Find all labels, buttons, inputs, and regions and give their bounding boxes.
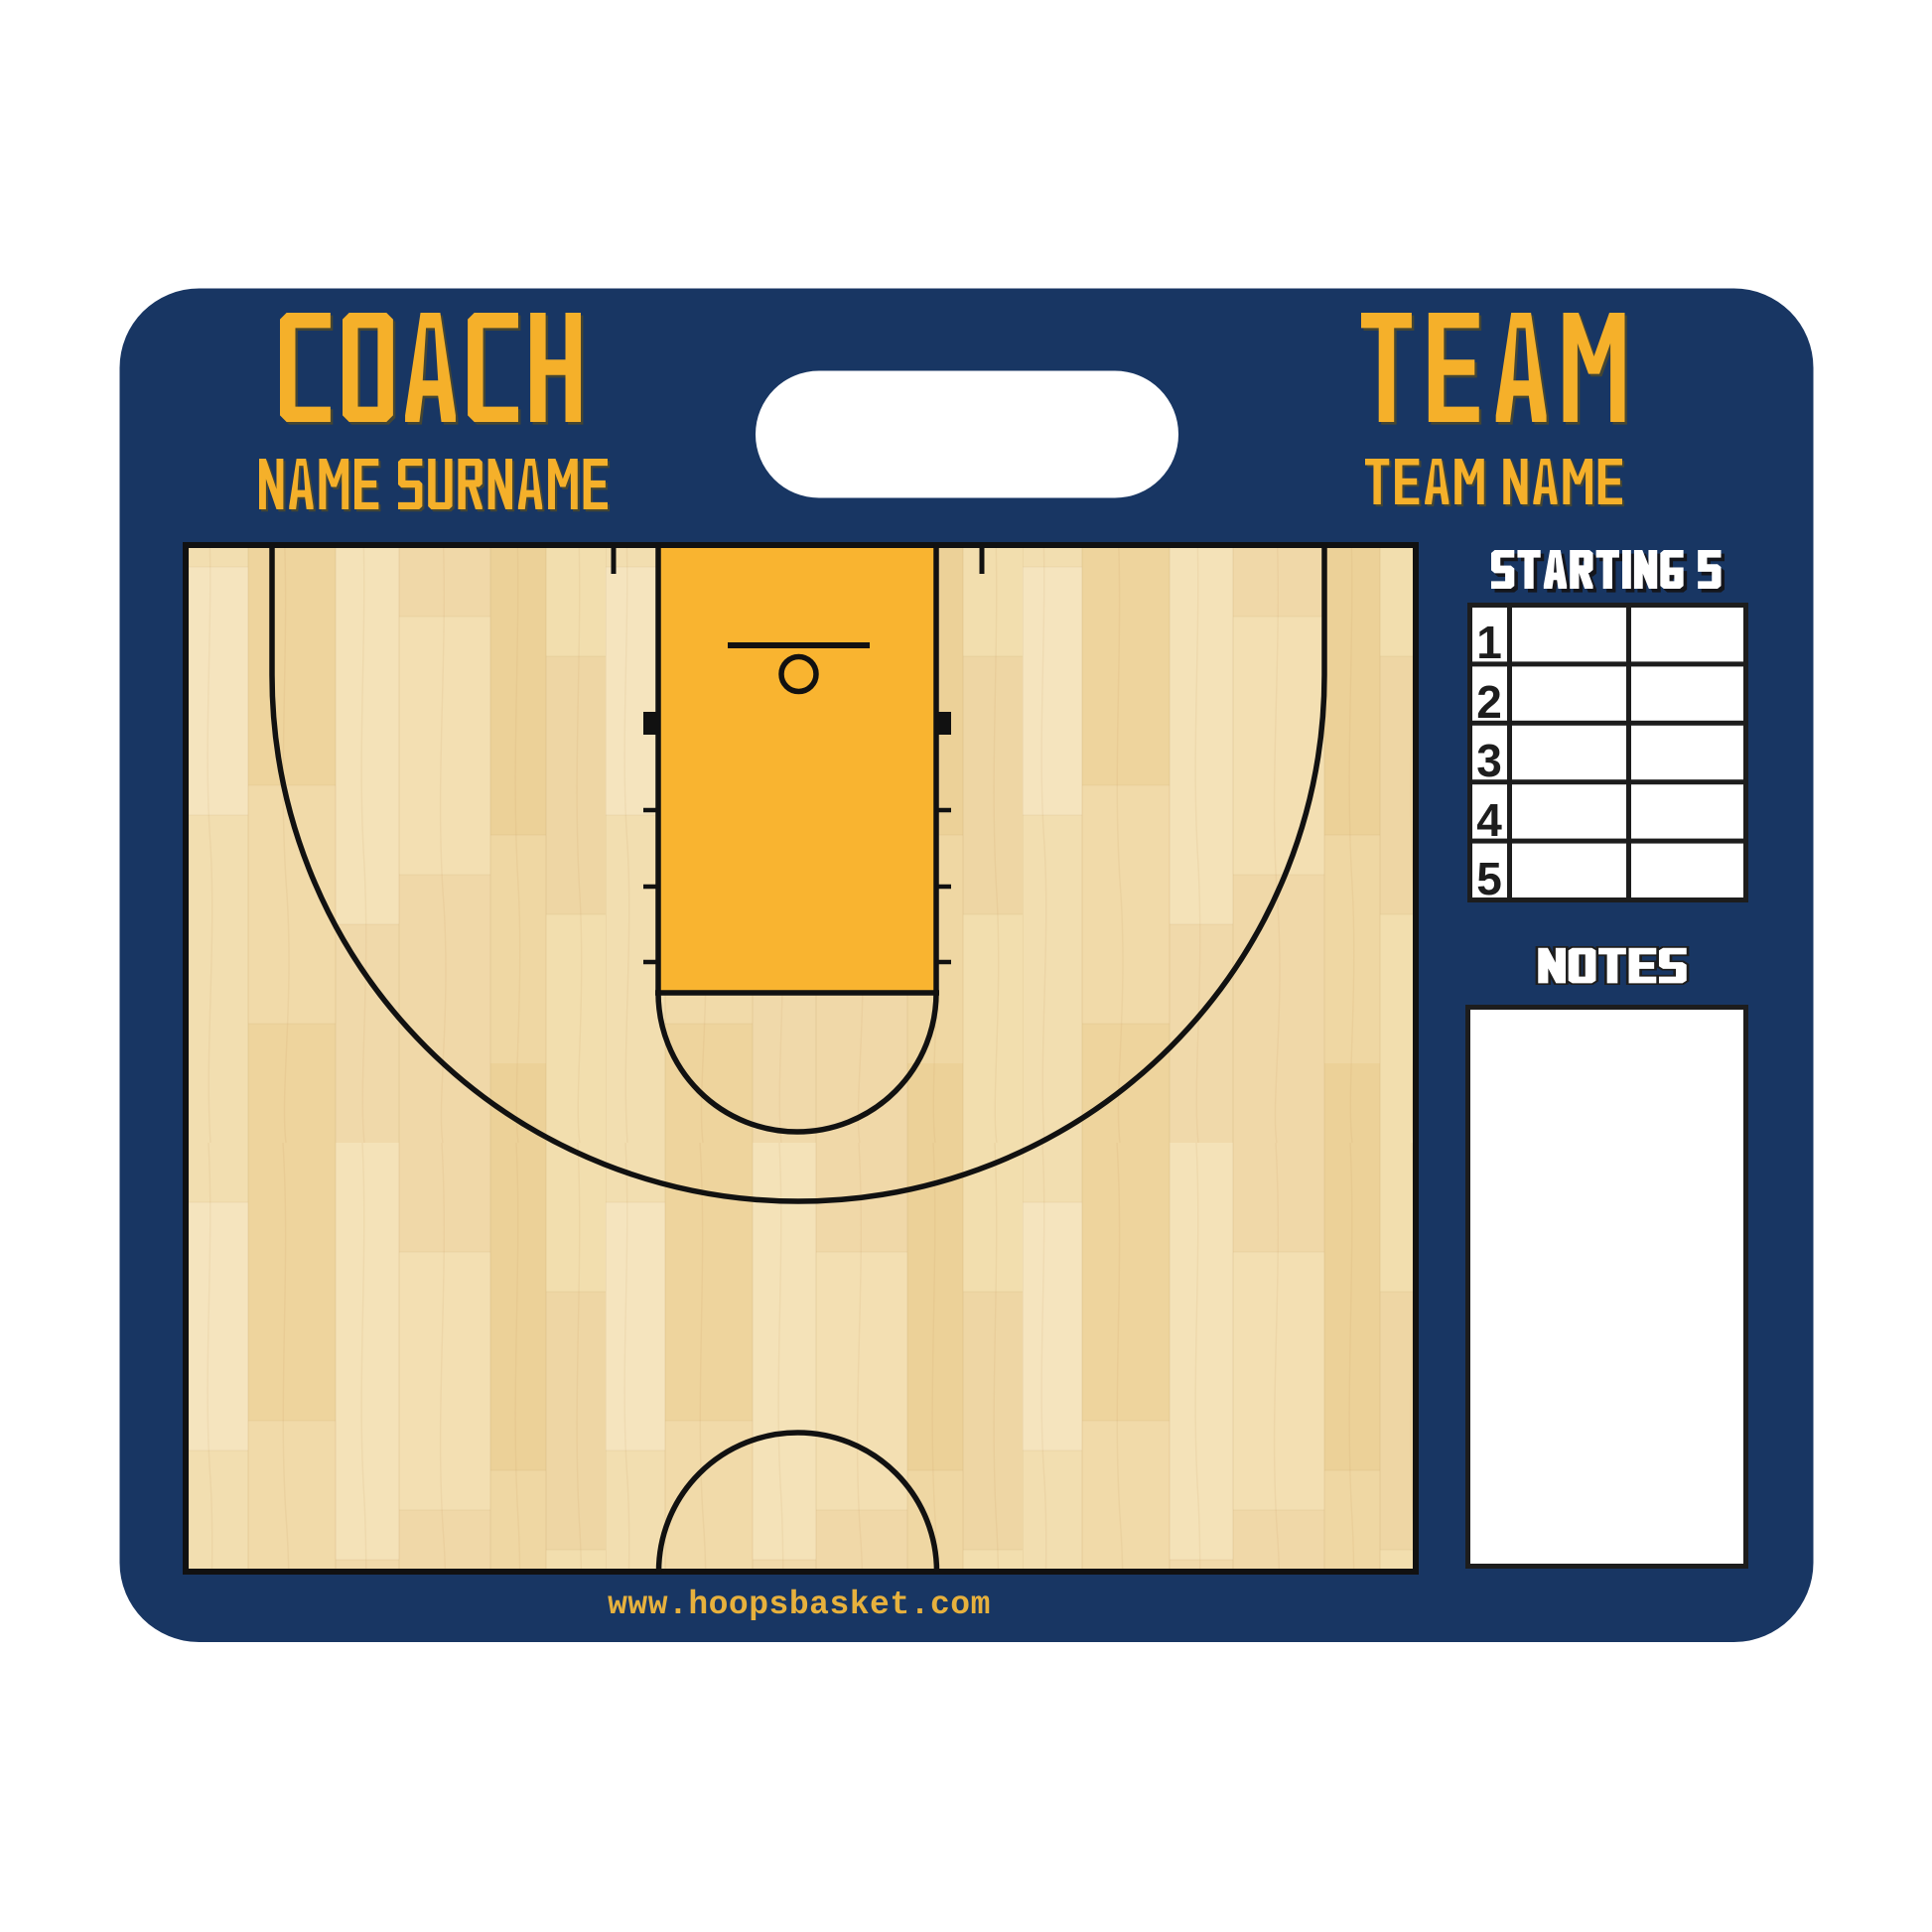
svg-text:5: 5: [1476, 853, 1502, 904]
svg-text:2: 2: [1476, 676, 1502, 728]
svg-text:1: 1: [1476, 617, 1502, 668]
svg-text:www.hoopsbasket.com: www.hoopsbasket.com: [608, 1587, 991, 1623]
svg-text:4: 4: [1476, 794, 1502, 846]
svg-text:3: 3: [1476, 735, 1502, 786]
